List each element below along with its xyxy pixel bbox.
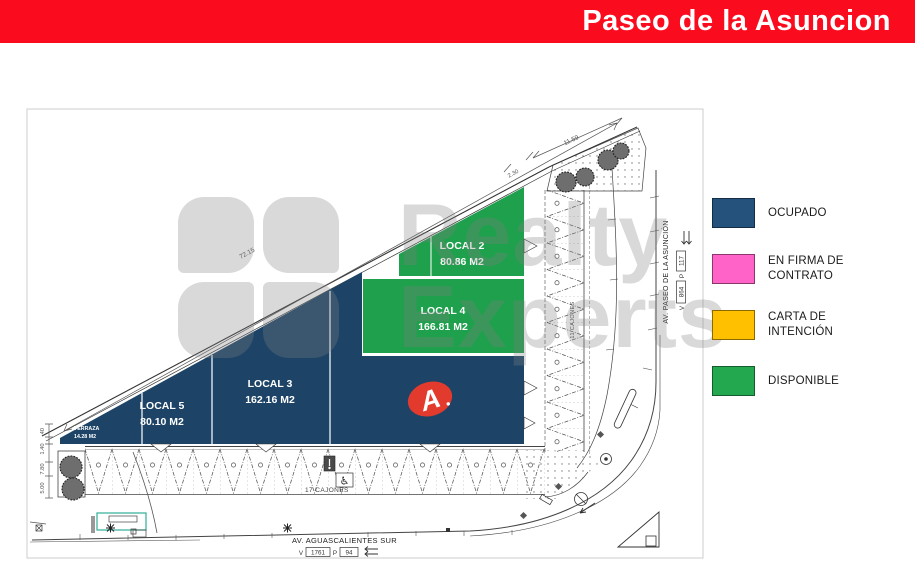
svg-text:P: P [333, 550, 337, 557]
svg-text:5.00: 5.00 [40, 482, 46, 493]
handicap-icon: ♿ [340, 476, 350, 488]
local-4-area: 166.81 M2 [418, 321, 468, 333]
parking-side-label: 11 CAJONES [570, 301, 576, 338]
legend-swatch-en-firma [712, 254, 755, 284]
reference-triangle [618, 512, 659, 547]
local-2-area: 80.86 M2 [440, 256, 484, 268]
svg-text:.40: .40 [40, 428, 46, 436]
legend-swatch-carta [712, 310, 755, 340]
lot-v-bottom: 1761 [311, 550, 326, 557]
local-3-name: LOCAL 3 [248, 378, 293, 390]
street-bottom-name: AV. AGUASCALIENTES SUR [292, 536, 397, 545]
svg-text:V: V [299, 550, 304, 557]
local-4-name: LOCAL 4 [421, 305, 466, 317]
svg-text:P: P [679, 274, 686, 278]
svg-text:1.40: 1.40 [40, 443, 46, 454]
terraza-area: 14.28 M2 [74, 434, 96, 440]
local-3-area: 162.16 M2 [245, 394, 295, 406]
lot-p-bottom: 94 [345, 550, 353, 557]
dim-boundary: 72.15 [238, 247, 256, 261]
arrows-icon [682, 231, 692, 244]
lot-v-right: 864 [679, 286, 686, 297]
dim-left-stack: .40 1.40 7.80 5.00 [40, 428, 46, 494]
legend-item-disponible: DISPONIBLE [712, 366, 912, 396]
legend-label-ocupado: OCUPADO [768, 206, 868, 221]
page-title: Paseo de la Asuncion [582, 0, 891, 43]
structure-outline [97, 513, 146, 530]
legend-item-carta: CARTA DE INTENCIÓN [712, 310, 912, 340]
legend-item-ocupado: OCUPADO [712, 198, 912, 228]
legend-label-en-firma: EN FIRMA DE CONTRATO [768, 254, 868, 284]
svg-text:7.80: 7.80 [40, 463, 46, 474]
plant-symbol [106, 524, 115, 533]
legend-swatch-disponible [712, 366, 755, 396]
legend: OCUPADO EN FIRMA DE CONTRATO CARTA DE IN… [712, 198, 912, 422]
local-5-area: 80.10 M2 [140, 416, 184, 428]
direction-arrow [580, 503, 595, 513]
legend-label-carta: CARTA DE INTENCIÓN [768, 310, 868, 340]
street-right-labels: AV. PASEO DE LA ASUNCIÓN V 864 P 117 [661, 220, 692, 323]
terraza-name: TERRAZA [74, 426, 99, 432]
svg-text:V: V [679, 305, 686, 310]
plant-symbol [283, 524, 292, 533]
legend-label-disponible: DISPONIBLE [768, 374, 868, 389]
local-5-name: LOCAL 5 [140, 400, 185, 412]
legend-swatch-ocupado [712, 198, 755, 228]
header-bar: Paseo de la Asuncion [0, 0, 915, 43]
local-2-name: LOCAL 2 [440, 240, 485, 252]
parking-bottom-label: 17 CAJONES [305, 487, 349, 494]
arrows-icon [365, 547, 378, 557]
lot-p-right: 117 [679, 255, 686, 266]
street-bottom-labels: AV. AGUASCALIENTES SUR V 1761 P 94 [292, 536, 397, 557]
parking-side: 11 CAJONES [545, 186, 590, 455]
street-right-name: AV. PASEO DE LA ASUNCIÓN [661, 220, 670, 323]
legend-item-en-firma: EN FIRMA DE CONTRATO [712, 254, 912, 284]
parking-bottom: 17 CAJONES [58, 447, 545, 498]
